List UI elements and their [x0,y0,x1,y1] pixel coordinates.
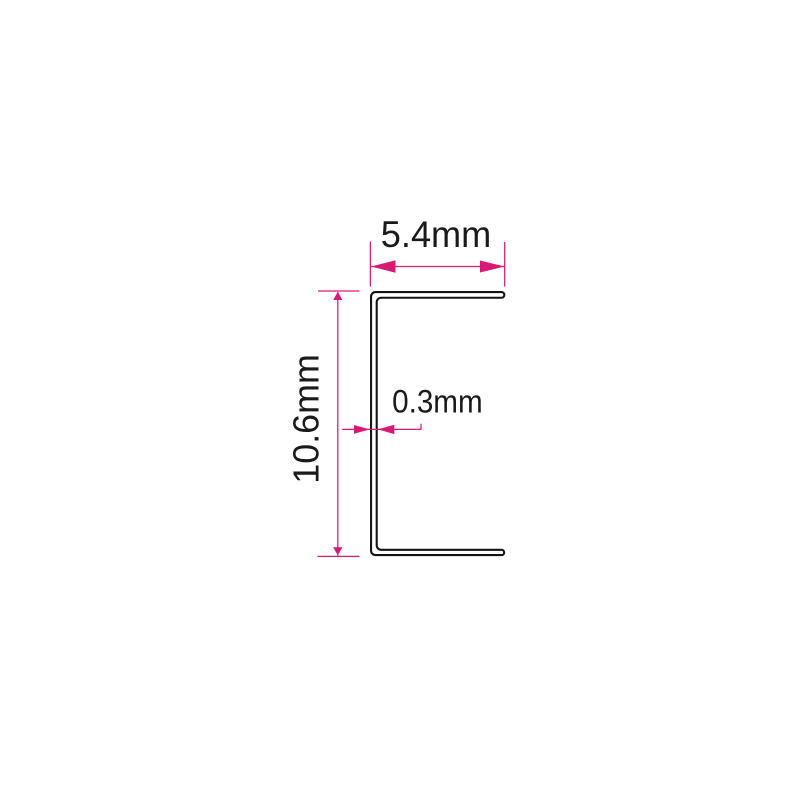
svg-text:10.6mm: 10.6mm [286,354,327,484]
svg-text:5.4mm: 5.4mm [381,214,492,255]
svg-text:0.3mm: 0.3mm [392,383,483,419]
